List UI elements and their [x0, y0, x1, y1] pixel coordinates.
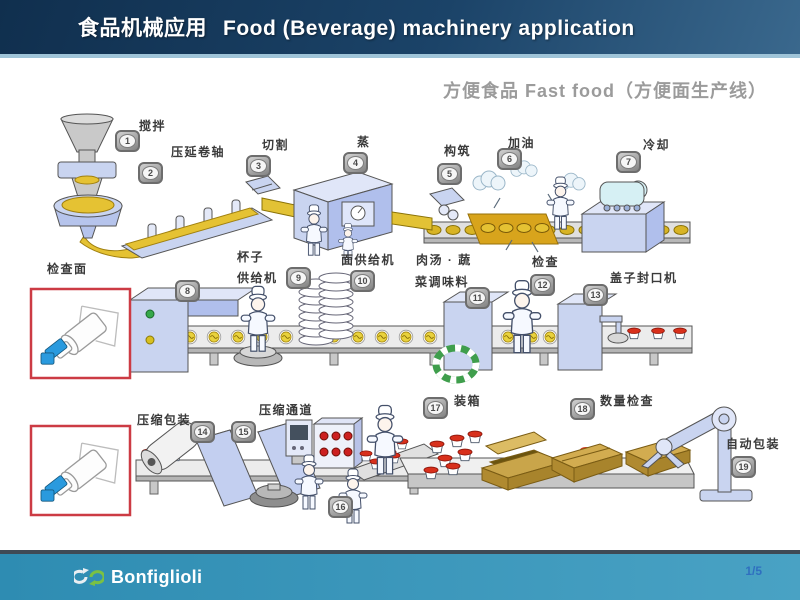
station-18-badge: 18 [570, 398, 595, 420]
station-11-label-2: 菜调味料 [415, 273, 469, 290]
slide-title-zh: 食品机械应用 [78, 17, 207, 40]
station-4-badge: 4 [343, 152, 368, 174]
station-4-label: 蒸 [357, 133, 371, 150]
station-1-label: 搅拌 [139, 117, 166, 134]
station-14-badge: 14 [190, 421, 215, 443]
forming-machine [430, 188, 464, 220]
station-1-badge: 1 [115, 130, 140, 152]
station-16-badge: 16 [328, 496, 353, 518]
footer-bar: Bonfiglioli [0, 554, 800, 600]
station-14-label: 压缩包装 [137, 411, 191, 428]
station-10-badge: 10 [350, 270, 375, 292]
station-13-badge: 13 [583, 284, 608, 306]
station-3-badge: 3 [246, 155, 271, 177]
station-5-label: 构筑 [444, 142, 471, 159]
station-18-label: 数量检查 [600, 392, 654, 409]
page-number: 1/5 [745, 564, 762, 578]
station-15-label: 压缩通道 [259, 401, 313, 418]
station-11-badge: 11 [465, 287, 490, 309]
station-13-label: 盖子封口机 [610, 269, 678, 286]
steam-cloud-icon [473, 171, 505, 190]
station-11-label: 肉汤 · 蔬 [416, 251, 472, 268]
station-10-label: 面供给机 [341, 251, 395, 268]
station-8-badge: 8 [175, 280, 200, 302]
station-6-badge: 6 [497, 148, 522, 170]
title-bar: 食品机械应用Food (Beverage) machinery applicat… [0, 0, 800, 58]
station-19-label: 自动包装 [726, 435, 780, 452]
brand-name: Bonfiglioli [111, 567, 202, 588]
station-12-label: 检查 [532, 253, 559, 270]
station-17-label: 装箱 [454, 392, 481, 409]
sealed-cups [628, 328, 687, 339]
gearmotor-inset-2 [31, 426, 130, 515]
station-19-badge: 19 [731, 456, 756, 478]
slide-subtitle: 方便食品 Fast food（方便面生产线） [443, 77, 767, 103]
station-2-badge: 2 [138, 162, 163, 184]
station-7-badge: 7 [616, 151, 641, 173]
station-3-label: 切割 [262, 136, 289, 153]
cup-conveyor [125, 326, 692, 365]
slide: 食品机械应用Food (Beverage) machinery applicat… [0, 0, 800, 600]
station-9-label: 杯子 [237, 248, 264, 265]
cooling-machine [582, 181, 664, 252]
station-2-label: 压延卷轴 [171, 143, 225, 160]
station-6-label: 加油 [508, 134, 535, 151]
station-9-label-2: 供给机 [237, 269, 278, 286]
slide-title-en: Food (Beverage) machinery application [223, 17, 635, 40]
station-17-badge: 17 [423, 397, 448, 419]
station-8-label: 检查面 [47, 260, 88, 277]
steaming-machine [294, 172, 432, 255]
brand-logo: Bonfiglioli [74, 566, 202, 588]
station-15-badge: 15 [231, 421, 256, 443]
station-5-badge: 5 [437, 163, 462, 185]
bonfiglioli-logo-icon [74, 566, 104, 588]
gearmotor-inset-1 [31, 289, 130, 378]
station-9-badge: 9 [286, 267, 311, 289]
station-7-label: 冷却 [643, 136, 670, 153]
control-panel [286, 418, 362, 468]
station-12-badge: 12 [530, 274, 555, 296]
